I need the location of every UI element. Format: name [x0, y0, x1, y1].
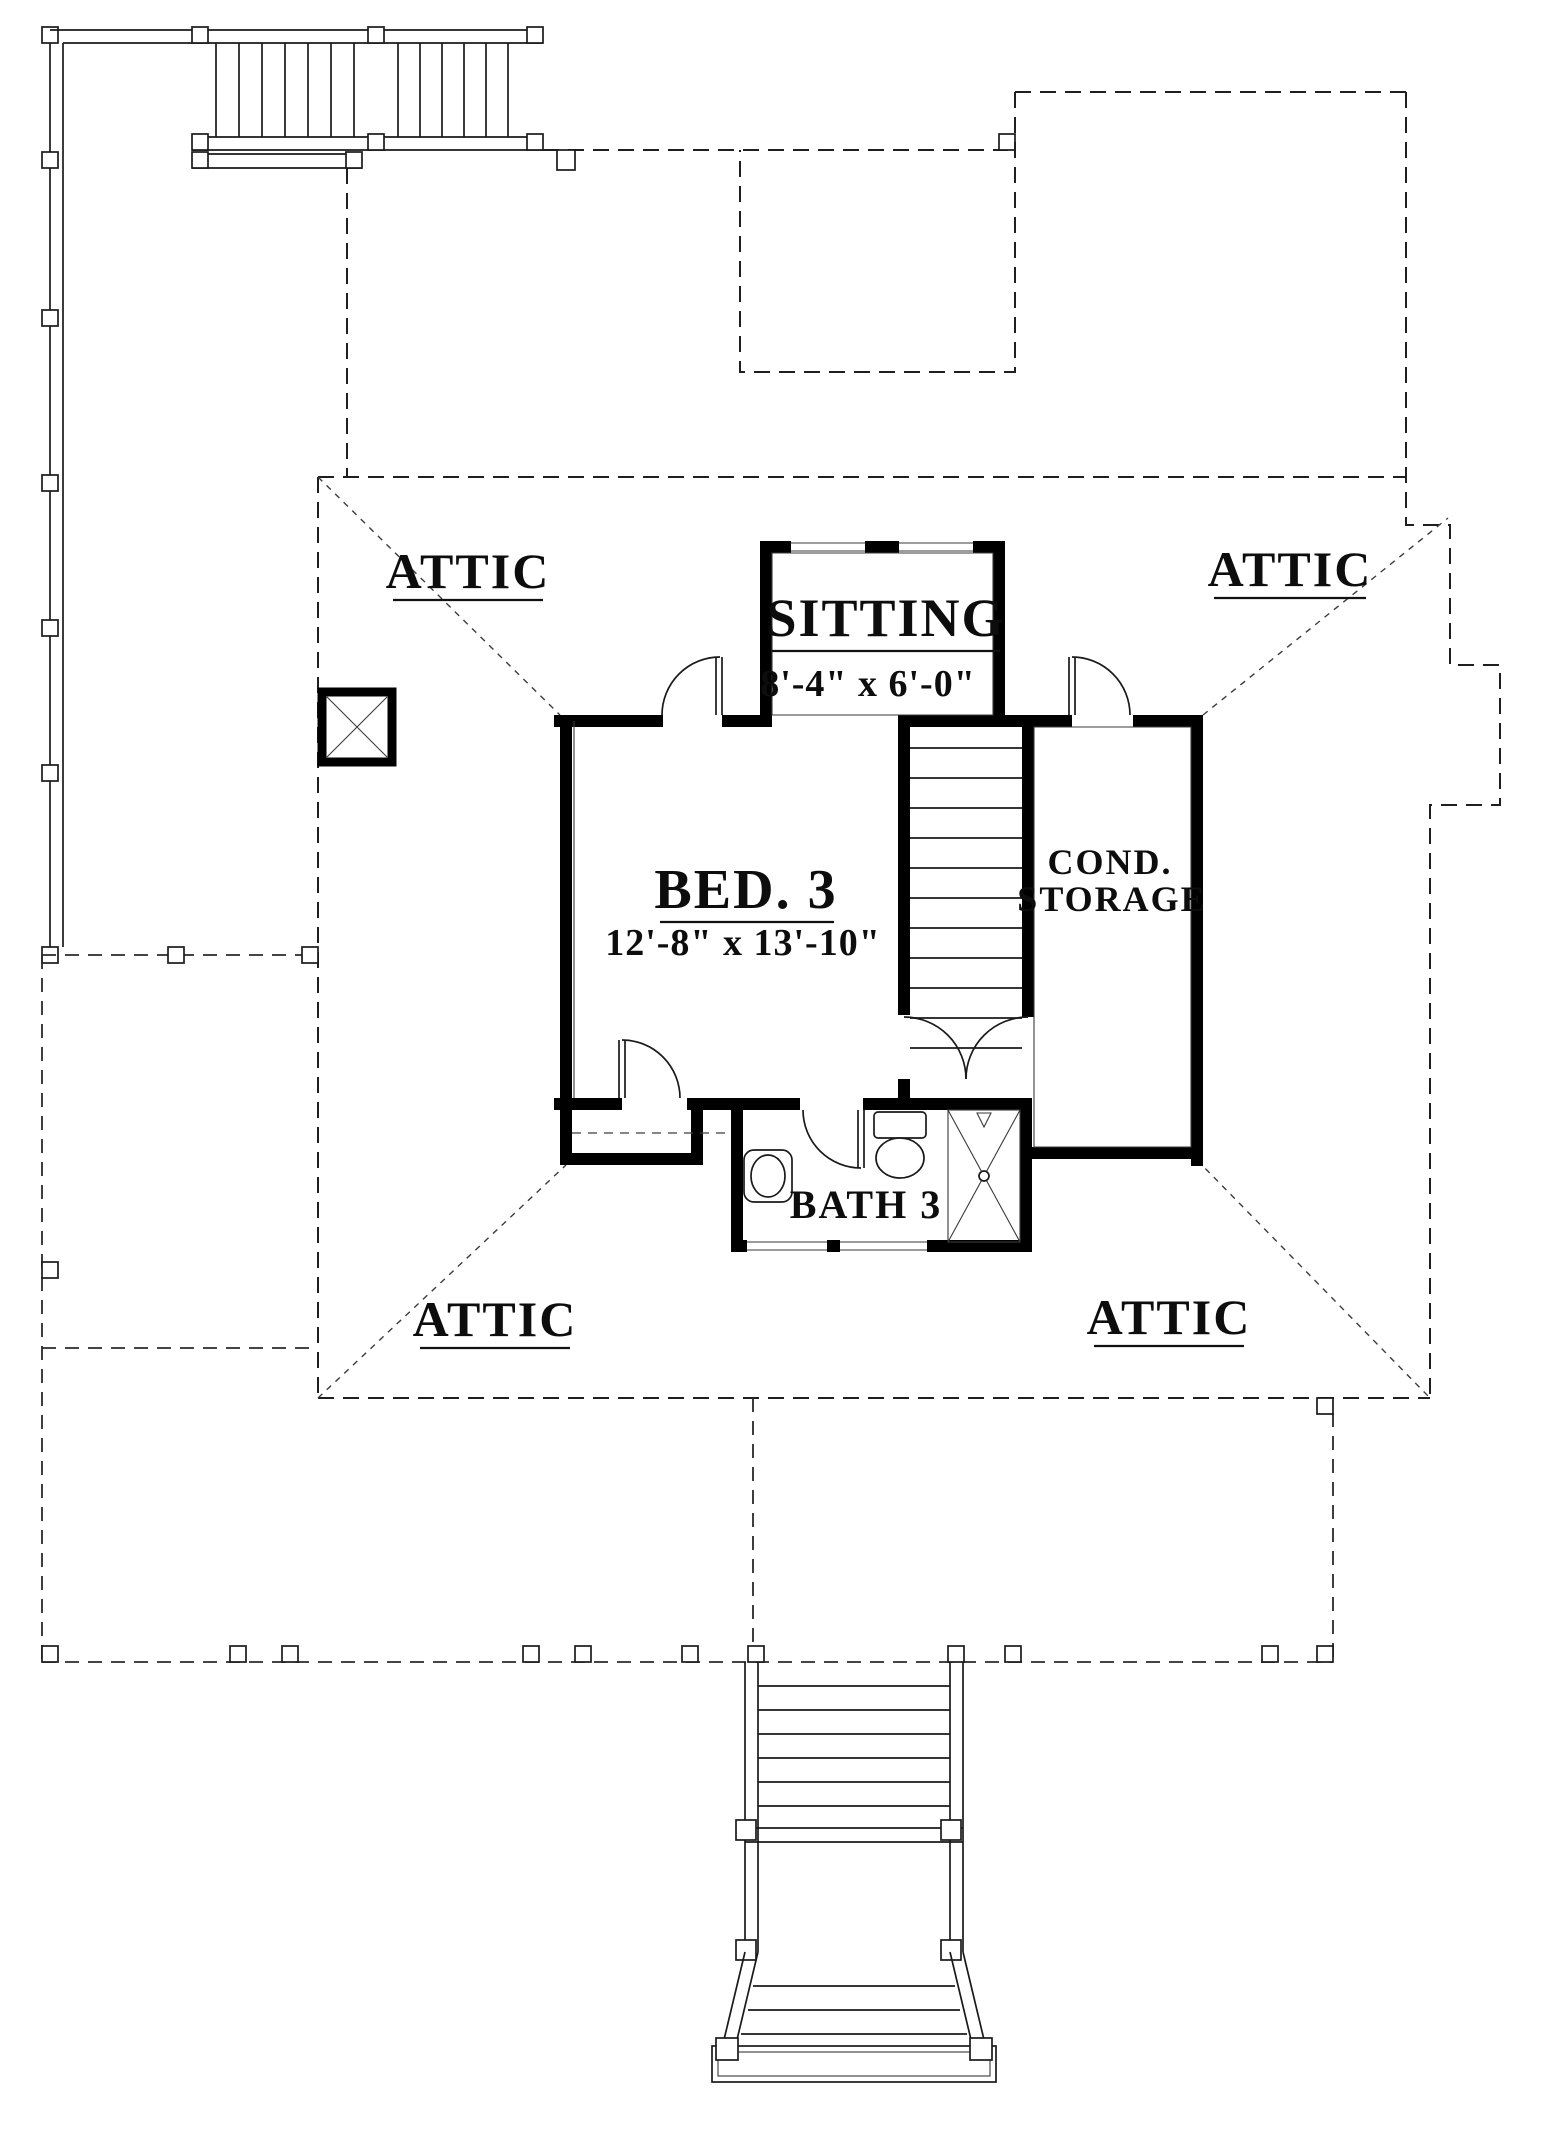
label-cond-storage-line1: COND.	[1048, 842, 1173, 882]
door-bed3-attic	[662, 657, 722, 715]
label-sitting-dims: 8'-4" x 6'-0"	[760, 663, 976, 705]
label-attic-bottom-right: ATTIC	[1087, 1289, 1252, 1345]
label-cond-storage-line2: STORAGE	[1017, 879, 1206, 919]
top-porch-railing	[50, 27, 543, 43]
sink	[744, 1150, 792, 1202]
exterior-stairs-bottom	[712, 1662, 996, 2082]
left-porch-railing	[42, 27, 63, 963]
label-bed3-dims: 12'-8" x 13'-10"	[605, 922, 881, 964]
label-bath3: BATH 3	[790, 1182, 942, 1227]
door-bed3-closet	[619, 1040, 680, 1098]
floor-plan-sheet: ATTIC ATTIC ATTIC ATTIC SITTING 8'-4" x …	[0, 0, 1550, 2152]
door-bath	[803, 1110, 864, 1168]
floor-plan-drawing: ATTIC ATTIC ATTIC ATTIC SITTING 8'-4" x …	[0, 0, 1550, 2152]
chimney	[322, 692, 392, 762]
label-attic-top-left: ATTIC	[386, 543, 551, 599]
label-bed3: BED. 3	[654, 859, 837, 921]
cond-storage-inner-face	[1034, 727, 1191, 1147]
shower	[948, 1110, 1020, 1242]
interior-staircase	[910, 748, 1022, 1048]
room-labels: ATTIC ATTIC ATTIC ATTIC SITTING 8'-4" x …	[386, 541, 1373, 1348]
toilet	[874, 1112, 926, 1178]
deck-stairs-top	[192, 43, 543, 168]
door-cond-attic	[1069, 657, 1130, 715]
label-attic-top-right: ATTIC	[1208, 541, 1373, 597]
label-sitting: SITTING	[766, 588, 1005, 648]
label-attic-bottom-left: ATTIC	[413, 1291, 578, 1347]
